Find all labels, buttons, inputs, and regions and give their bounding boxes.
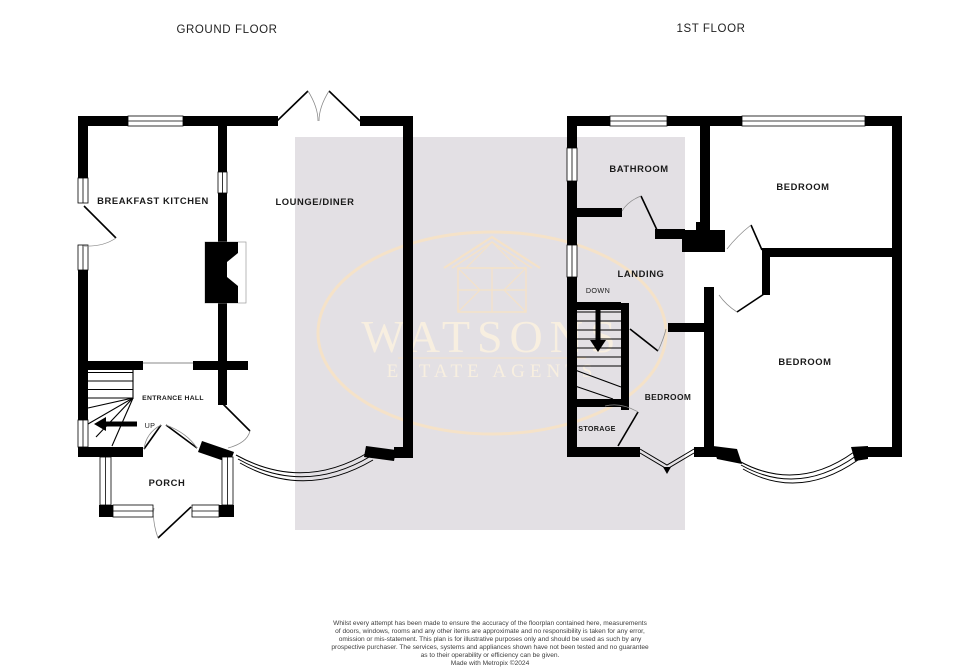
label-bedroom-right: BEDROOM — [778, 356, 831, 367]
label-bedroom-top: BEDROOM — [776, 181, 829, 192]
label-bedroom-middle: BEDROOM — [645, 392, 692, 402]
disclaimer-line: of doors, windows, rooms and any other i… — [0, 628, 980, 636]
disclaimer-line: Whilst every attempt has been made to en… — [0, 620, 980, 628]
lounge-door — [223, 404, 250, 448]
chimney-breast-first — [682, 230, 725, 252]
disclaimer: Whilst every attempt has been made to en… — [0, 620, 980, 669]
up-arrow — [94, 417, 137, 431]
ground-floor-windows — [78, 116, 233, 517]
disclaimer-credit: Made with Metropix ©2024 — [0, 660, 980, 668]
label-entrance-hall: ENTRANCE HALL — [142, 395, 204, 402]
label-breakfast-kitchen: BREAKFAST KITCHEN — [97, 195, 209, 206]
watermark-tagline: ESTATE AGENTS — [387, 361, 598, 382]
ground-floor-stairs — [88, 370, 137, 446]
label-landing: LANDING — [618, 268, 665, 279]
label-lounge-diner: LOUNGE/DINER — [275, 196, 354, 207]
disclaimer-line: prospective purchaser. The services, sys… — [0, 644, 980, 652]
first-floor-title: 1ST FLOOR — [676, 23, 745, 35]
bedroom-top-door — [727, 225, 762, 250]
floorplan-canvas: WATSONS ESTATE AGENTS GROUND FLOOR 1ST F… — [0, 0, 980, 670]
french-doors — [277, 91, 360, 121]
disclaimer-line: omission or mis-statement. This plan is … — [0, 636, 980, 644]
kitchen-door — [84, 206, 116, 246]
watermark-name: WATSONS — [361, 311, 622, 362]
label-storage: STORAGE — [578, 424, 616, 433]
bedroom-bay-window — [739, 452, 858, 483]
bedroom-right-door — [719, 294, 764, 312]
bay-corner-left-first — [713, 446, 742, 464]
label-porch: PORCH — [149, 477, 186, 488]
ground-floor-title: GROUND FLOOR — [176, 24, 277, 36]
label-up: UP — [145, 421, 156, 430]
label-down: DOWN — [586, 286, 610, 295]
label-bathroom: BATHROOM — [609, 163, 668, 174]
floorplan-page: WATSONS ESTATE AGENTS GROUND FLOOR 1ST F… — [0, 0, 980, 670]
porch-door — [154, 507, 192, 538]
chimney-breast — [205, 242, 238, 303]
bay-corner-right-first — [851, 446, 868, 461]
